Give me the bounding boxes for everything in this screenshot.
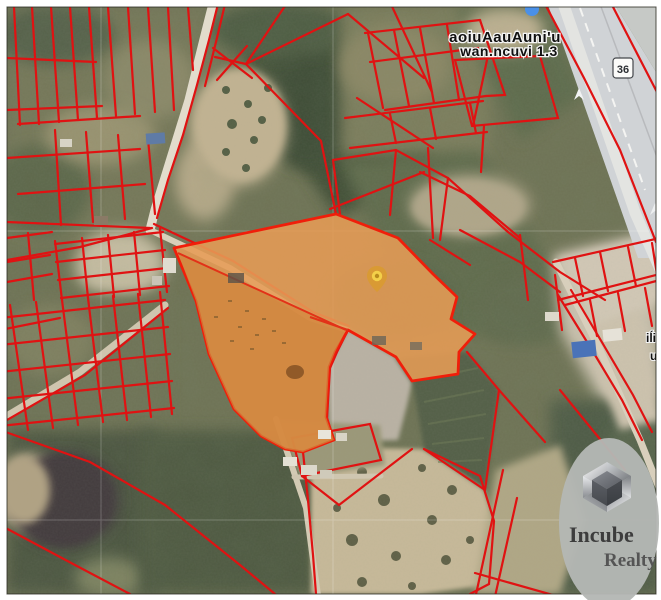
- svg-text:iĺi: iĺi: [646, 330, 656, 345]
- svg-text:36: 36: [617, 64, 629, 76]
- svg-text:wan.ncuvi 1.3: wan.ncuvi 1.3: [459, 43, 558, 59]
- svg-text:Realty: Realty: [604, 550, 657, 571]
- svg-text:Incube: Incube: [569, 522, 634, 547]
